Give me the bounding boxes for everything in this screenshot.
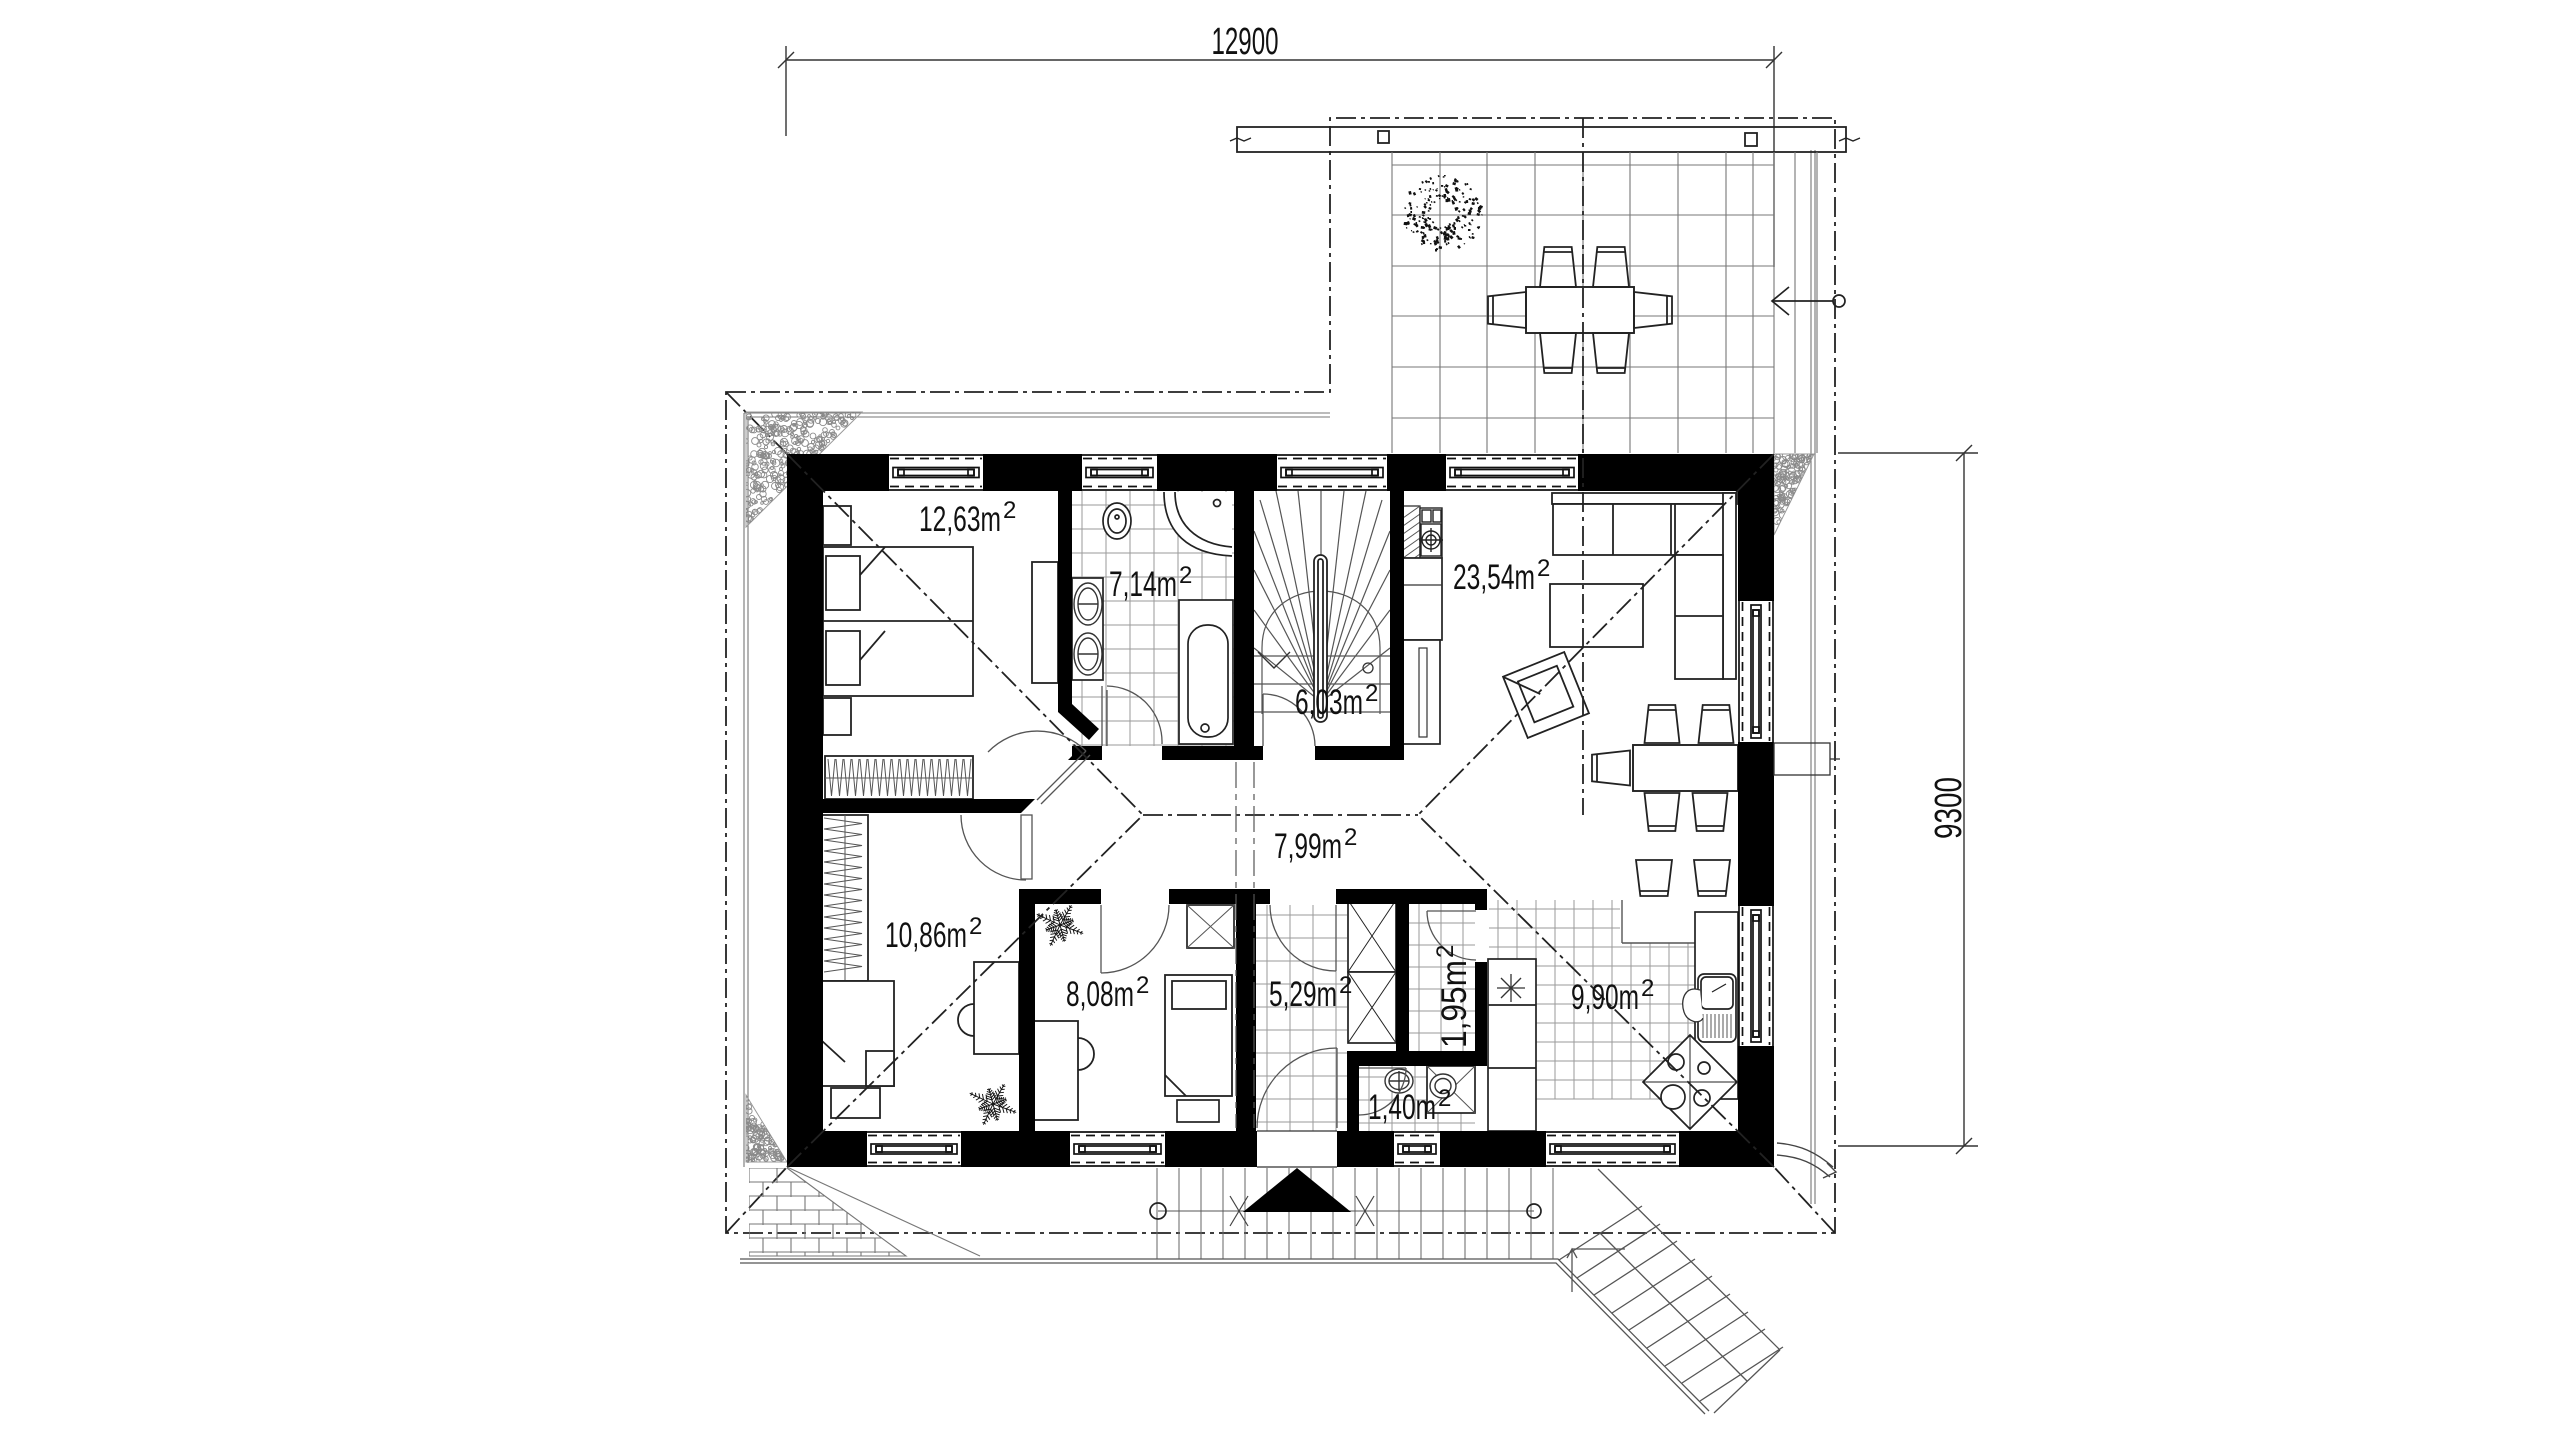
svg-text:6,03m: 6,03m — [1295, 683, 1363, 722]
svg-text:23,54m: 23,54m — [1453, 558, 1535, 597]
svg-text:7,14m: 7,14m — [1109, 565, 1177, 604]
svg-text:2: 2 — [1537, 555, 1550, 582]
svg-text:2: 2 — [1179, 562, 1192, 589]
svg-text:2: 2 — [969, 913, 982, 940]
svg-text:10,86m: 10,86m — [885, 916, 967, 955]
svg-text:2: 2 — [1438, 1085, 1451, 1112]
svg-text:2: 2 — [1432, 945, 1459, 958]
svg-text:1,95m: 1,95m — [1435, 960, 1474, 1048]
svg-text:7,99m: 7,99m — [1274, 827, 1342, 866]
svg-text:2: 2 — [1641, 975, 1654, 1002]
svg-text:9300: 9300 — [1928, 777, 1970, 839]
svg-text:2: 2 — [1136, 972, 1149, 999]
svg-text:2: 2 — [1344, 824, 1357, 851]
svg-text:12,63m: 12,63m — [919, 500, 1001, 539]
svg-text:1,40m: 1,40m — [1368, 1088, 1436, 1127]
svg-text:5,29m: 5,29m — [1269, 975, 1337, 1014]
svg-text:2: 2 — [1365, 680, 1378, 707]
svg-text:8,08m: 8,08m — [1066, 975, 1134, 1014]
svg-text:12900: 12900 — [1212, 21, 1279, 63]
svg-text:2: 2 — [1339, 972, 1352, 999]
svg-text:2: 2 — [1003, 497, 1016, 524]
svg-text:9,90m: 9,90m — [1571, 978, 1639, 1017]
